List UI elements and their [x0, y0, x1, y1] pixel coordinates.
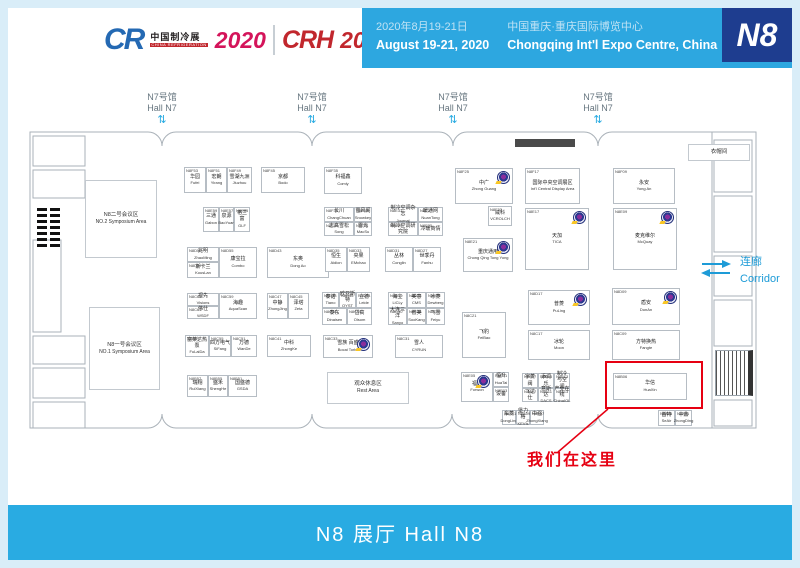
booth-N8A13: N8A13产业在线ChinaIOL [554, 388, 570, 402]
booth-N8C31: N8C31雪人CYRUN [395, 335, 443, 358]
booth-N8A17: N8A17飞达仕 [522, 388, 538, 402]
hall-title: N8 展厅 Hall N8 [316, 518, 484, 547]
booth-N8E25: N8E25冷暖商情 [418, 222, 443, 236]
booth-N8D43: N8D43东奥Dong Ao [267, 247, 329, 278]
booth-N8A41: N8A41东菱DongLing [502, 410, 516, 425]
booth-N8E30: N8E30志高雪松Song [324, 222, 354, 236]
booth-N8B11: N8B11意斯达DACS [538, 388, 554, 402]
hall-walls [0, 0, 800, 568]
updown-arrow-icon: ⇅ [421, 115, 485, 126]
booth-N8F30: N8F30长川ChangChuan [324, 207, 354, 222]
booth-N8B51: N8B51国盛德GSDA [228, 375, 257, 397]
booth-N8C30: N8C30大连三洋Sanyo [388, 308, 407, 325]
booth-N8C45: N8C45泽塔Zeta [288, 293, 309, 319]
booth-N8F32: N8F32雪风阁Snowkey [354, 207, 372, 222]
booth-N8D30: N8D30海立LiCLy [388, 292, 407, 308]
booth-N8E34: N8E34雪光MacSu [354, 222, 372, 236]
booth-N8E29: N8E29制冷空调研究院 [388, 222, 418, 236]
booth-N8F25: N8F25中广Zhong Guang [455, 168, 513, 204]
booth-N8D09: N8D09盾安DunAn [612, 288, 680, 325]
booth-N8E27: N8E27暖通网NuanTong [418, 207, 443, 222]
rest-area: 观众休息区 Rest Area [327, 372, 409, 404]
booth-N8F45: N8F45京都Bodo [261, 167, 305, 193]
cloakroom-area: 衣帽间 [688, 144, 750, 161]
booth-N8C34: N8C34岱高Olsom [347, 308, 372, 325]
booth-N8D59: N8D59兆明ZhaoMing [187, 247, 219, 262]
symposium-area-2: N8二号会议区 NO.2 Symposium Area [85, 180, 157, 258]
booth-N8C55: N8C55四方电气SiFang [209, 335, 231, 357]
booth-N8D36: N8D36欧亚斯特OYST [339, 292, 356, 308]
booth-N8C47: N8C47中静ZhongJing [267, 293, 288, 319]
booth-N8C17: N8C17冰轮Moon [528, 330, 590, 360]
hall-n7-link: N7号馆 Hall N7 ⇅ [280, 92, 344, 126]
exhibitor-logo-icon [477, 375, 490, 388]
booth-N8E59: N8E59三通Gabon [203, 207, 219, 232]
booth-N8F51: N8F51宏朗Yirang [206, 167, 227, 193]
booth-N8E57: N8E57泉源BaoYuan [219, 207, 234, 232]
booth-N8C63: N8C63视先Visions [187, 293, 219, 306]
exhibitor-logo-icon [661, 211, 674, 224]
booth-N8E03: N8E03设备 [493, 387, 509, 402]
booth-N8D35: N8D35恒生Aidion [325, 247, 347, 272]
booth-N8D55: N8D55康宝拉Combo [219, 247, 257, 278]
booth-N8A07: N8A07中强ZhongXiang [530, 410, 544, 425]
booth-N8D28: N8D28美意CMS [407, 292, 426, 308]
exhibitor-logo-icon [497, 171, 510, 184]
booth-N8D38: N8D38泰诺Tiano [322, 292, 339, 308]
booth-N8E17: N8E17天加TICA [525, 208, 589, 270]
booth-N8C26: N8C26飞雪Feiyu [426, 308, 445, 325]
booth-N8E21: N8E21重庆通用Chong Qing Tong Yong [463, 238, 513, 272]
booth-N8B17: N8B17宇菱阀 [522, 373, 538, 388]
booth-N8A01: N8A01中鼎ZhongDing [675, 410, 692, 426]
booth-N8C57: N8C57富莱达热泵FuLaiDa [185, 335, 209, 357]
updown-arrow-icon: ⇅ [566, 115, 630, 126]
exhibitor-logo-icon [357, 338, 370, 351]
updown-arrow-icon: ⇅ [280, 115, 344, 126]
booth-N8C59: N8C59海趣AquaScan [219, 293, 257, 319]
symposium-area-1: N8一号会议区 NO.1 Symposium Area [89, 307, 160, 390]
booth-N8D26: N8D26冰菱Dewberg [426, 292, 445, 308]
booth-N8C28: N8C28普美SooKang [407, 308, 426, 325]
booth-N8E05: N8E05福威Forwon [461, 372, 493, 402]
booth-N8F23: N8F23威科VCROLCH [488, 206, 512, 226]
booth-N8A05: N8A05首特SeAir [658, 410, 675, 426]
booth-N8F53: N8F53华园Fufei [184, 167, 206, 193]
hall-n7-link: N7号馆 Hall N7 ⇅ [421, 92, 485, 126]
booth-N8F09: N8F09永安Yong An [613, 168, 675, 204]
service-desk [515, 139, 575, 147]
seating-rows [37, 208, 47, 248]
booth-N8C38: N8C38泰东Dinaisen [322, 308, 347, 325]
booth-N8C33: N8C33雪族 百盛Bocai Torlei [323, 335, 373, 358]
booth-N8B57: N8B57瑞翔RuiXiang [187, 375, 208, 397]
exhibitor-logo-icon [497, 241, 510, 254]
floor-plan: N7号馆 Hall N7 ⇅ N7号馆 Hall N7 ⇅ N7号馆 Hall … [0, 0, 800, 568]
exhibitor-logo-icon [664, 291, 677, 304]
hall-n7-link: N7号馆 Hall N7 ⇅ [130, 92, 194, 126]
booth-N8F35: N8F35科福鑫Comly [324, 167, 362, 194]
page-frame: CR 中国制冷展 CHINA REFRIGERATION 2020 CRH 20… [8, 8, 792, 560]
exhibitor-logo-icon [573, 211, 586, 224]
footer-bar: N8 展厅 Hall N8 [8, 505, 792, 560]
booth-N8C51: N8C51万德WanDe [231, 335, 257, 357]
booth-N8E55: N8E55格兰富GLF [234, 207, 250, 232]
booth-N8D34: N8D34立德Leide [356, 292, 372, 308]
booth-N8C09: N8C09方特换热Fangte [612, 330, 680, 360]
booth-N8C41: N8C41中科ZhongKe [267, 335, 311, 357]
booth-N8F49: N8F49雪湖九洲Jiuzhou [227, 167, 252, 193]
corridor-arrows-icon [701, 260, 731, 277]
booth-N8B55: N8B55盛禾ShengHe [208, 375, 228, 397]
booth-N8C61: N8C61伟仕WSDF [187, 306, 219, 319]
booth-N8E09: N8E09麦克维尔McQuay [613, 208, 677, 270]
booth-N8D27: N8D27世季丹Fanhu [413, 247, 441, 272]
booth-N8D17: N8D17普菱PuLing [528, 290, 590, 325]
stairs-icon [715, 350, 753, 396]
we-are-here-text: 我们在这里 [527, 446, 617, 470]
exhibitor-logo-icon [574, 293, 587, 306]
booth-N8F17: N8F17国际中央空调展区Int'l Central Display Area [525, 168, 580, 204]
booth-N8D31: N8D31丛林Conglin [385, 247, 413, 272]
seating-rows [50, 208, 60, 248]
booth-N8D33: N8D33央果EMchao [347, 247, 370, 272]
booth-N8B06: N8B06华信HuaXin [613, 373, 687, 400]
corridor-label: 连廊 Corridor [740, 254, 780, 287]
booth-N8D57: N8D57斯卡兰KousLan [187, 262, 219, 278]
booth-N8E31: N8E31制冷空调杂志Journal [388, 207, 418, 222]
hall-n7-link: N7号馆 Hall N7 ⇅ [566, 92, 630, 126]
booth-N8E01: N8E01恒升HuaTai [493, 372, 509, 387]
booth-N8C21: N8C21飞豹FeiBao [462, 312, 506, 358]
updown-arrow-icon: ⇅ [130, 115, 194, 126]
